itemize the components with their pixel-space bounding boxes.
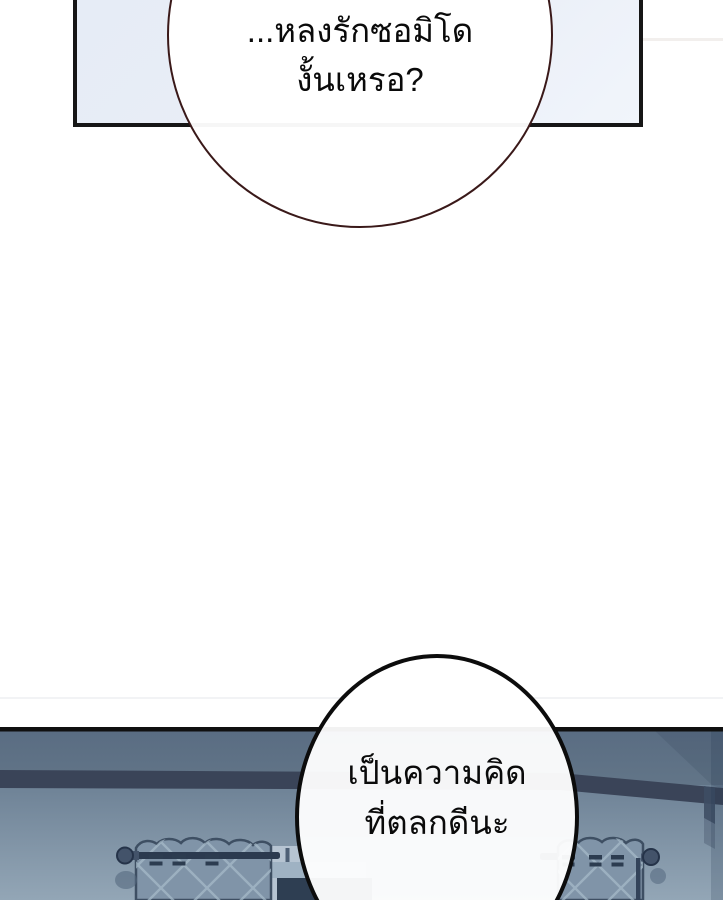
speech-text-top: ...หลงรักซอมิโด งั้นเหรอ? xyxy=(167,6,553,104)
image-seam-line-top xyxy=(641,38,723,41)
curtain-support-right xyxy=(636,858,641,900)
right-wall-shade xyxy=(711,731,723,900)
speech-text-top-line2: งั้นเหรอ? xyxy=(167,55,553,104)
curtain-finial-left xyxy=(117,848,133,864)
speech-text-bottom: เป็นความคิด ที่ตลกดีนะ xyxy=(295,748,579,848)
speech-text-top-line1: ...หลงรักซอมิโด xyxy=(167,6,553,55)
webtoon-page: ...หลงรักซอมิโด งั้นเหรอ? xyxy=(0,0,723,900)
curtain-shadow-right xyxy=(650,868,666,884)
curtain-finial-right xyxy=(643,849,659,865)
speech-text-bottom-line2: ที่ตลกดีนะ xyxy=(295,798,579,848)
curtain-left xyxy=(115,838,280,900)
speech-text-bottom-line1: เป็นความคิด xyxy=(295,748,579,798)
curtain-shadow-left xyxy=(115,871,137,889)
